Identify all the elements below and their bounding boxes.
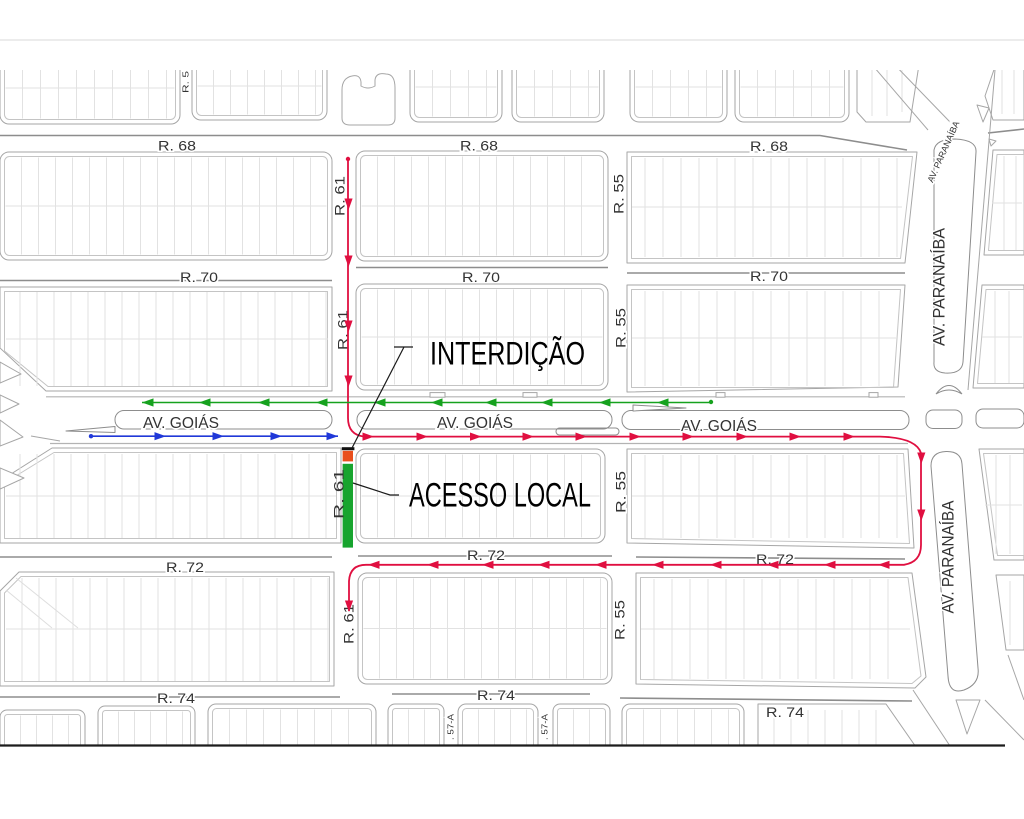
svg-text:R. 68: R. 68 xyxy=(750,139,788,154)
svg-text:R. 72: R. 72 xyxy=(166,560,204,575)
svg-text:AV. GOIÁS: AV. GOIÁS xyxy=(437,413,513,432)
svg-text:R. 68: R. 68 xyxy=(460,139,498,154)
svg-text:R. 70: R. 70 xyxy=(180,270,218,285)
svg-text:R. 70: R. 70 xyxy=(750,269,788,284)
svg-text:R. 55: R. 55 xyxy=(612,174,627,214)
svg-text:. 57-A: . 57-A xyxy=(445,714,455,740)
svg-text:R. 74: R. 74 xyxy=(157,691,196,706)
svg-text:AV. PARANAÍBA: AV. PARANAÍBA xyxy=(929,228,948,346)
svg-text:AV. PARANAÍBA: AV. PARANAÍBA xyxy=(938,501,957,614)
svg-text:AV. GOIÁS: AV. GOIÁS xyxy=(143,413,219,432)
svg-text:ACESSO LOCAL: ACESSO LOCAL xyxy=(409,477,591,515)
svg-text:. 57-A: . 57-A xyxy=(539,714,549,740)
svg-text:R. 5: R. 5 xyxy=(180,71,190,93)
svg-text:R. 70: R. 70 xyxy=(462,270,500,285)
svg-text:R. 55: R. 55 xyxy=(614,308,629,348)
svg-text:R. 68: R. 68 xyxy=(158,139,196,154)
svg-text:R. 61: R. 61 xyxy=(332,469,347,519)
svg-text:R. 55: R. 55 xyxy=(613,600,628,640)
svg-text:R. 74: R. 74 xyxy=(477,688,516,703)
svg-text:R. 74: R. 74 xyxy=(766,705,805,720)
svg-text:R. 61: R. 61 xyxy=(333,176,348,216)
svg-text:AV. GOIÁS: AV. GOIÁS xyxy=(681,416,757,435)
svg-text:R. 55: R. 55 xyxy=(614,471,629,513)
svg-text:INTERDIÇÃO: INTERDIÇÃO xyxy=(430,336,585,372)
svg-text:R. 72: R. 72 xyxy=(467,548,505,563)
